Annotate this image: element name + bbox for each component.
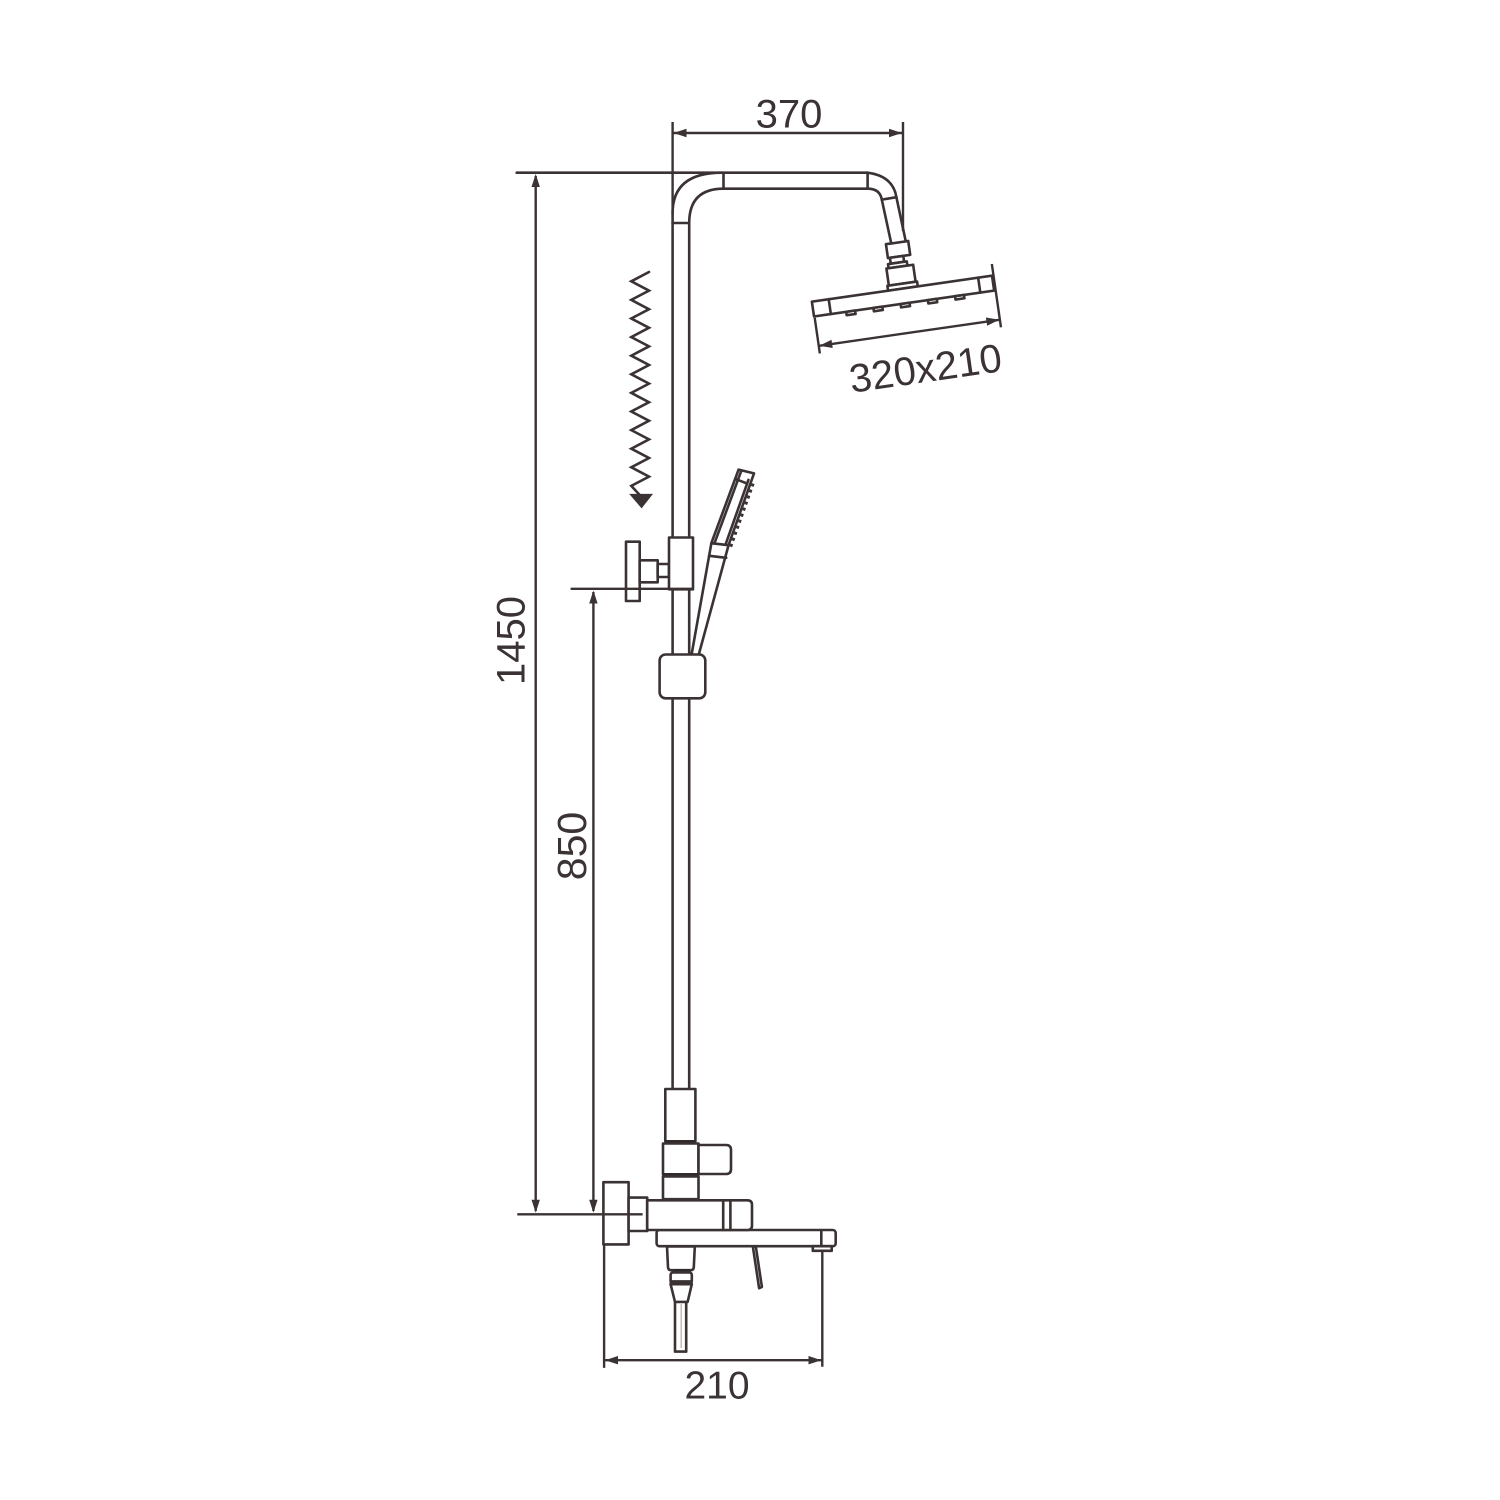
svg-text:370: 370	[756, 93, 823, 137]
svg-text:850: 850	[549, 812, 595, 880]
svg-text:210: 210	[684, 1365, 749, 1408]
svg-text:1450: 1450	[490, 596, 534, 685]
